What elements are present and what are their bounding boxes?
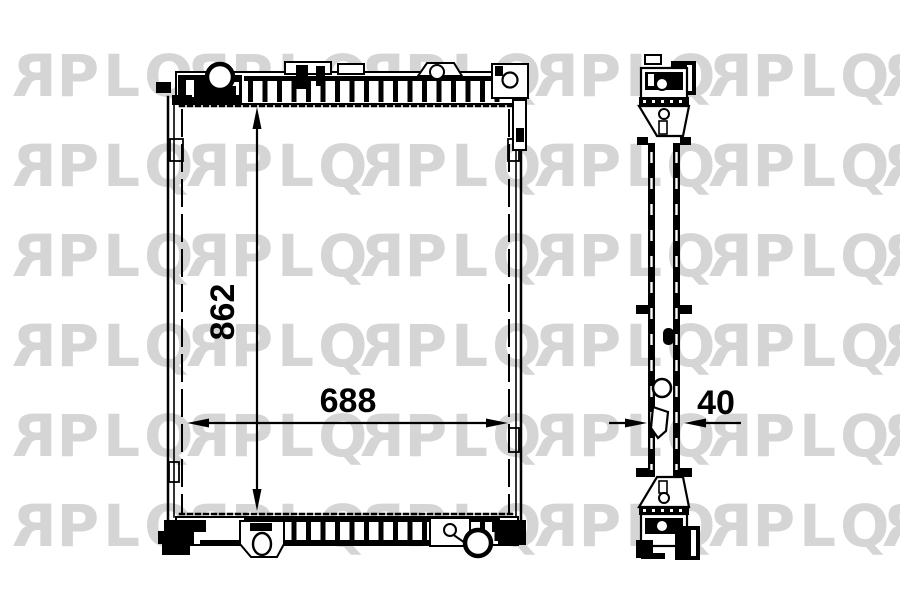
height-dimension-label: 862 bbox=[204, 284, 242, 341]
tank-rib bbox=[292, 80, 297, 102]
side-baffle bbox=[651, 407, 668, 438]
arrow-right-icon bbox=[625, 419, 647, 428]
tank-rib bbox=[306, 521, 311, 541]
side-port-hole bbox=[653, 379, 671, 397]
arrow-down-icon bbox=[253, 489, 262, 511]
tank-rib bbox=[335, 80, 340, 102]
tank-rib bbox=[451, 80, 456, 102]
radiator-side-view bbox=[636, 55, 700, 560]
tank-rib bbox=[350, 521, 355, 541]
side-top-bracket bbox=[637, 55, 696, 145]
dimension-annotations: 862 688 40 bbox=[187, 107, 741, 511]
tank-rib bbox=[437, 80, 442, 102]
tank-rib bbox=[335, 521, 340, 541]
tank-rib bbox=[422, 80, 427, 102]
tank-rib bbox=[350, 80, 355, 102]
depth-dimension-label: 40 bbox=[697, 384, 735, 422]
filler-cap bbox=[205, 64, 236, 98]
tank-rib bbox=[408, 521, 413, 541]
tank-rib bbox=[364, 80, 369, 102]
core-left-edge bbox=[168, 97, 183, 521]
arrow-right-icon bbox=[486, 419, 508, 428]
top-tank bbox=[156, 62, 528, 150]
technical-drawing-page: RPLQRPLQRPLQRPLQRPLQRPLQRPLQRPLQRPLQRPLQ… bbox=[0, 0, 900, 600]
width-dimension-label: 688 bbox=[320, 382, 377, 420]
tank-rib bbox=[277, 80, 282, 102]
tank-rib bbox=[379, 521, 384, 541]
core-right-edge bbox=[508, 97, 521, 521]
arrow-left-icon bbox=[187, 419, 209, 428]
radiator-diagram: 862 688 40 bbox=[0, 0, 900, 600]
tank-rib bbox=[379, 80, 384, 102]
tank-rib bbox=[480, 80, 485, 102]
side-bottom-bracket bbox=[636, 477, 700, 560]
tank-rib bbox=[422, 521, 427, 541]
tank-rib bbox=[321, 521, 326, 541]
width-dimension: 688 bbox=[187, 382, 508, 428]
tank-rib bbox=[364, 521, 369, 541]
left-mount-tab bbox=[156, 82, 171, 93]
tank-rib bbox=[248, 80, 253, 102]
tank-rib bbox=[393, 80, 398, 102]
tank-rib bbox=[292, 521, 297, 541]
drain-outlet bbox=[465, 530, 491, 556]
side-clip bbox=[663, 328, 674, 345]
tank-rib bbox=[466, 80, 471, 102]
height-dimension: 862 bbox=[204, 107, 262, 511]
tank-rib bbox=[408, 80, 413, 102]
bottom-center-bracket bbox=[240, 521, 284, 557]
tank-rib bbox=[393, 521, 398, 541]
arrow-up-icon bbox=[253, 107, 262, 129]
bottom-tank bbox=[158, 514, 526, 557]
tank-rib bbox=[263, 80, 268, 102]
